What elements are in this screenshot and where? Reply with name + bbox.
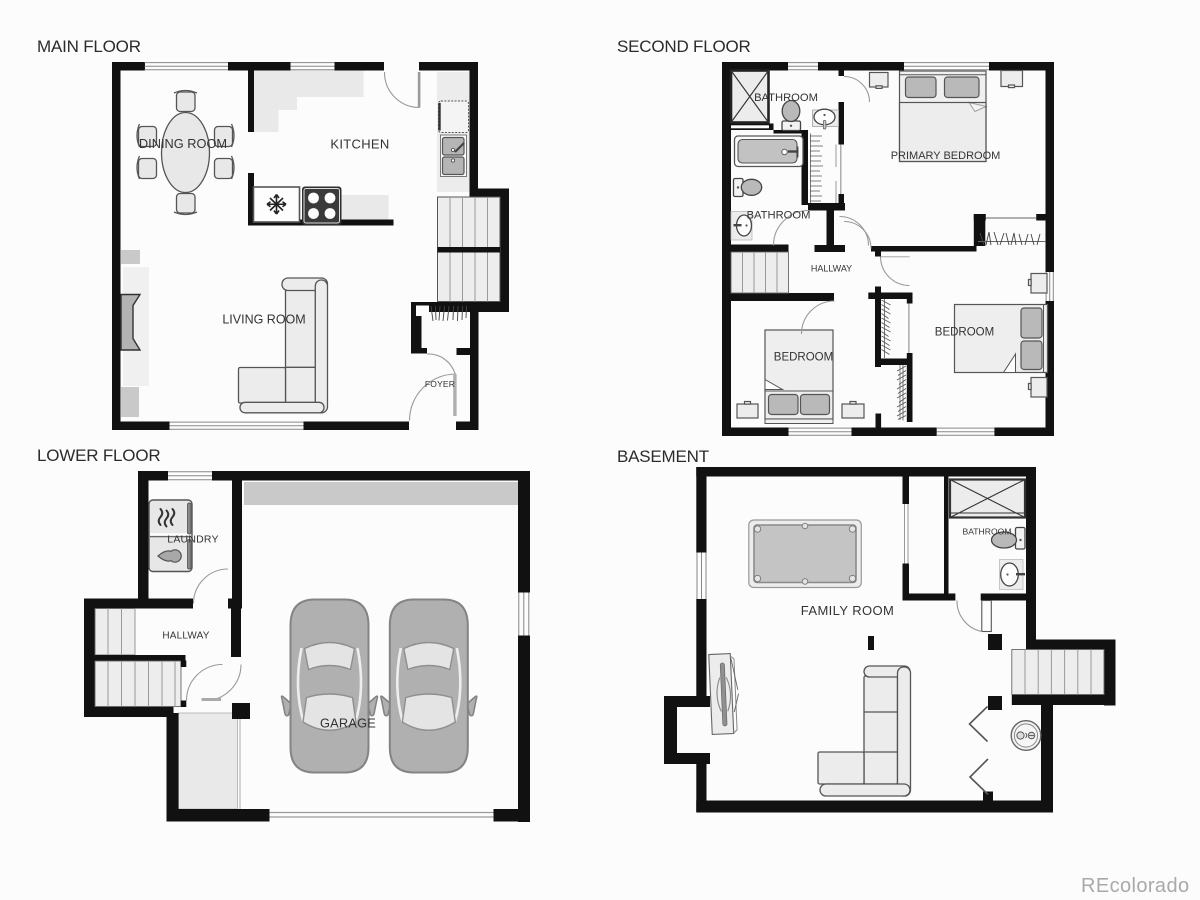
svg-text:FAMILY ROOM: FAMILY ROOM — [801, 603, 895, 618]
svg-text:FOYER: FOYER — [425, 379, 455, 389]
svg-text:PRIMARY BEDROOM: PRIMARY BEDROOM — [891, 150, 1001, 162]
svg-text:LOWER FLOOR: LOWER FLOOR — [37, 446, 160, 465]
svg-text:BEDROOM: BEDROOM — [935, 327, 994, 339]
svg-text:BATHROOM: BATHROOM — [962, 527, 1011, 537]
svg-text:LIVING ROOM: LIVING ROOM — [222, 313, 305, 327]
svg-text:GARAGE: GARAGE — [320, 716, 376, 731]
svg-text:BATHROOM: BATHROOM — [754, 92, 818, 104]
svg-text:MAIN FLOOR: MAIN FLOOR — [37, 37, 141, 56]
svg-text:HALLWAY: HALLWAY — [162, 631, 209, 642]
svg-text:REcolorado: REcolorado — [1081, 875, 1190, 897]
svg-text:BEDROOM: BEDROOM — [774, 352, 833, 364]
svg-text:SECOND FLOOR: SECOND FLOOR — [617, 37, 751, 56]
svg-text:KITCHEN: KITCHEN — [330, 137, 389, 152]
svg-text:DINING ROOM: DINING ROOM — [139, 136, 227, 151]
svg-text:BATHROOM: BATHROOM — [747, 210, 811, 222]
svg-text:BASEMENT: BASEMENT — [617, 447, 709, 466]
svg-text:LAUNDRY: LAUNDRY — [167, 534, 218, 546]
svg-text:HALLWAY: HALLWAY — [811, 264, 852, 274]
